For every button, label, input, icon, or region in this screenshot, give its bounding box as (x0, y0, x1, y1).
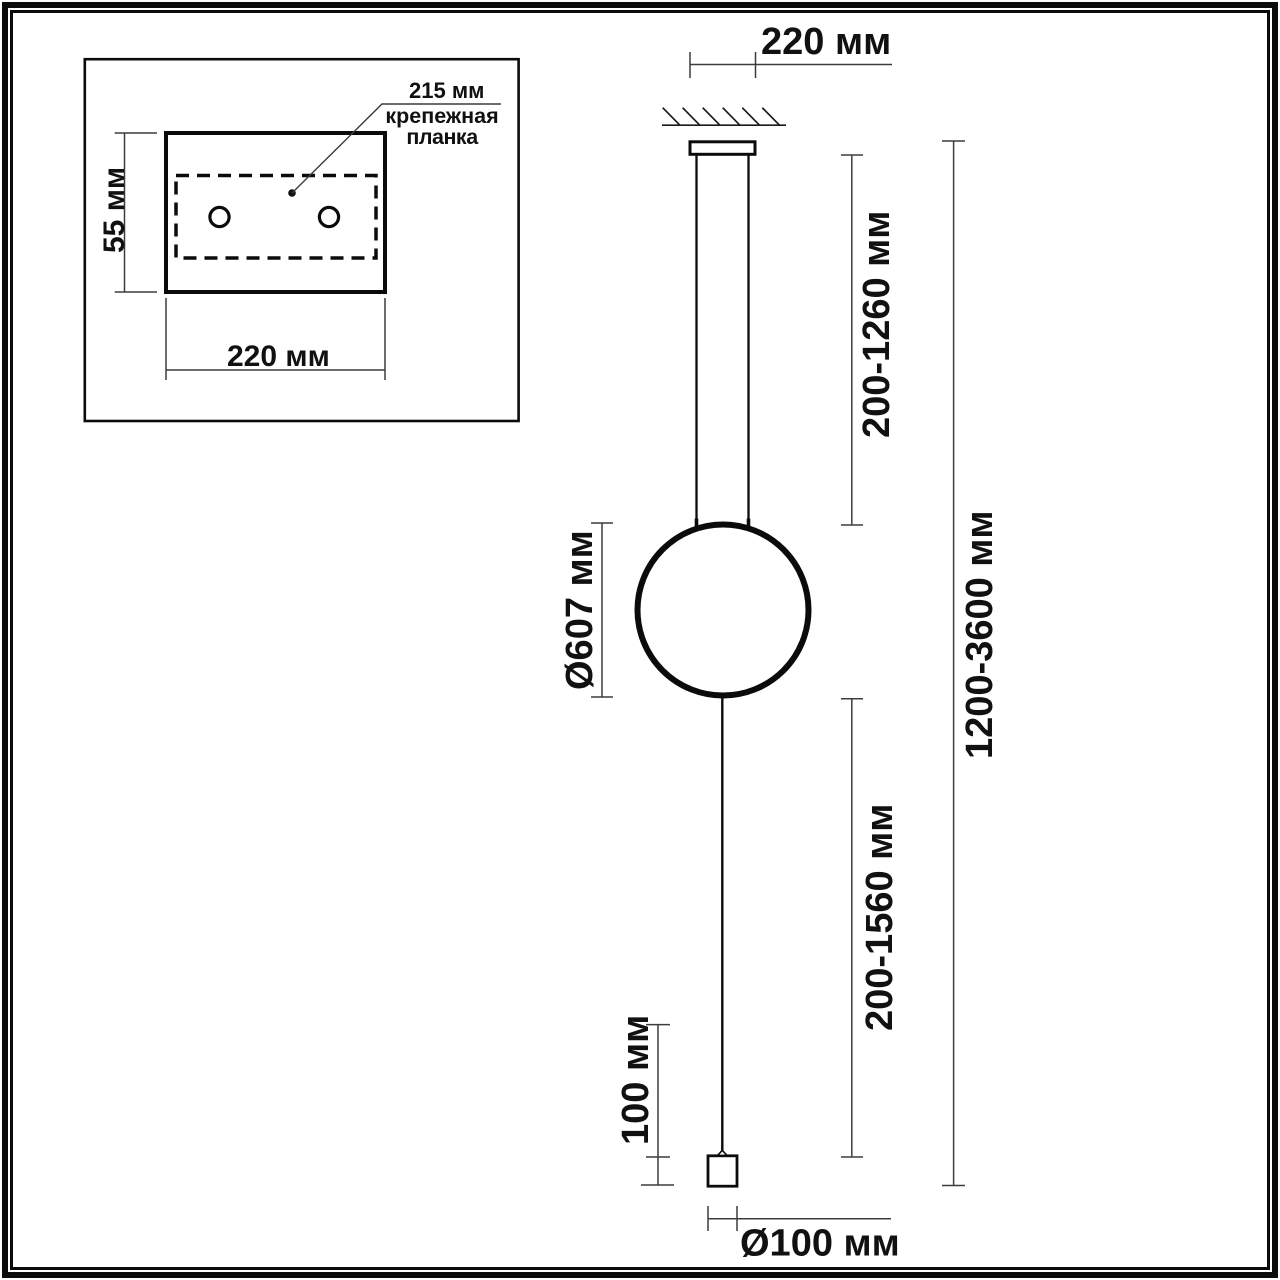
svg-text:100 мм: 100 мм (615, 1015, 657, 1145)
svg-text:Ø607 мм: Ø607 мм (559, 530, 601, 690)
svg-text:200-1560 мм: 200-1560 мм (859, 804, 901, 1031)
svg-text:220 мм: 220 мм (761, 21, 891, 63)
svg-text:Ø100 мм: Ø100 мм (740, 1223, 900, 1265)
svg-text:55 мм: 55 мм (98, 167, 131, 253)
svg-text:1200-3600 мм: 1200-3600 мм (959, 510, 1001, 759)
svg-text:планка: планка (406, 125, 479, 149)
svg-text:215 мм: 215 мм (409, 78, 484, 103)
svg-text:200-1260 мм: 200-1260 мм (856, 211, 898, 438)
svg-text:220 мм: 220 мм (227, 340, 330, 373)
